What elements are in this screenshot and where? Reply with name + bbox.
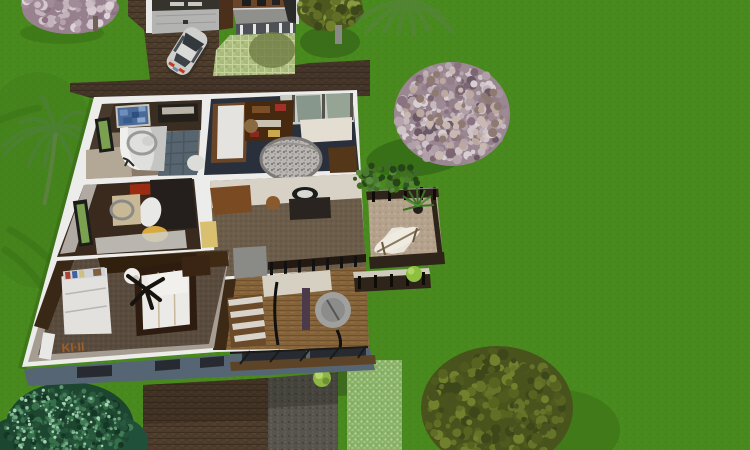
svg-text:KI·II: KI·II [61,340,85,356]
